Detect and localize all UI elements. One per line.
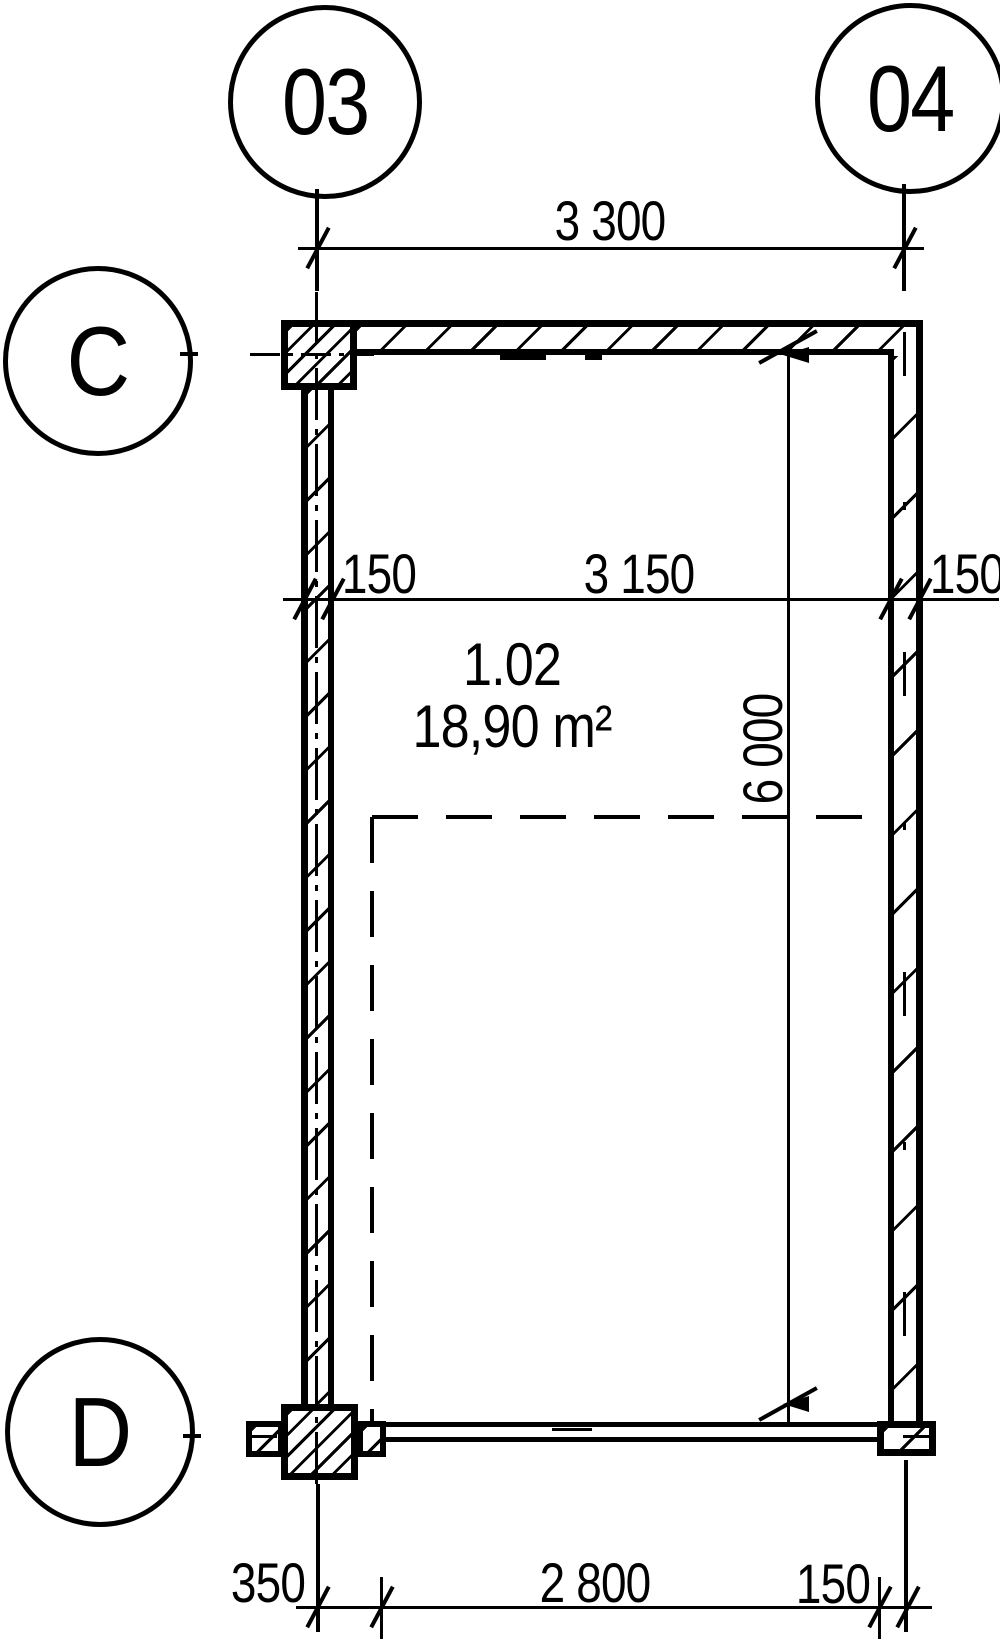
wall-top-lintel-dash	[585, 355, 602, 360]
dim-label-bottom-clear: 2 800	[513, 1555, 677, 1611]
dim-label-bottom-left-offset: 350	[207, 1555, 330, 1611]
wall-left-hatch	[308, 390, 328, 1405]
room-number: 1.02	[425, 635, 599, 695]
dim-label-clear-width: 3 150	[557, 546, 721, 602]
grid-bubble-C-label: C	[66, 312, 130, 410]
grid-bubble-04-label: 04	[867, 52, 953, 146]
dim-label-clear-height: 6 000	[735, 667, 791, 831]
wall-left-inner-line	[328, 388, 334, 1406]
grid-bubble-03-label: 03	[282, 55, 368, 149]
grid-bubble-C: C	[3, 266, 193, 456]
dim-label-top-span: 3 300	[528, 193, 692, 249]
column-bottom-left-west-stub	[246, 1421, 284, 1457]
grid-bubble-04: 04	[815, 3, 1000, 194]
grid-03-stem-line	[315, 189, 319, 291]
grid-bubble-D-label: D	[68, 1383, 132, 1481]
column-top-left	[281, 320, 357, 390]
wall-left-outer-line	[301, 388, 308, 1406]
dim-arrow-icon	[783, 1396, 809, 1412]
grid-C-tick-line	[180, 352, 198, 356]
floor-plan-canvas: 03 04 C D 3 300	[0, 0, 1000, 1642]
wall-bottom-top-line	[384, 1422, 877, 1427]
column-bottom-left-east-stub	[357, 1421, 386, 1457]
room-area: 18,90 m²	[382, 697, 643, 757]
dim-label-right-wall-thickness: 150	[906, 546, 1000, 602]
column-bottom-right-footing	[877, 1421, 936, 1456]
dashed-line-vertical	[370, 817, 374, 1422]
dashed-line-horizontal	[372, 815, 890, 819]
dim-arrow-icon	[783, 347, 809, 363]
grid-bubble-03: 03	[228, 5, 422, 199]
grid-04-stem-line	[902, 184, 906, 291]
wall-right-outer-line	[916, 320, 923, 1424]
wall-bottom-centerline-dash	[552, 1428, 592, 1431]
dim-label-bottom-right-thickness: 150	[772, 1556, 895, 1612]
grid-D-tick-line	[183, 1434, 201, 1438]
column-bottom-left	[281, 1404, 358, 1480]
wall-bottom-bottom-line	[384, 1437, 877, 1442]
wall-right-hatch	[894, 356, 916, 1418]
dim-line-interior-height	[787, 352, 790, 1423]
wall-top-outer-line	[281, 320, 923, 327]
wall-top-lintel-dash	[500, 355, 546, 360]
dim-label-left-wall-thickness: 150	[318, 546, 441, 602]
wall-right-inner-line	[888, 349, 894, 1423]
grid-bubble-D: D	[5, 1337, 195, 1527]
wall-top-hatch	[357, 327, 916, 349]
wall-top-inner-line	[352, 349, 894, 355]
